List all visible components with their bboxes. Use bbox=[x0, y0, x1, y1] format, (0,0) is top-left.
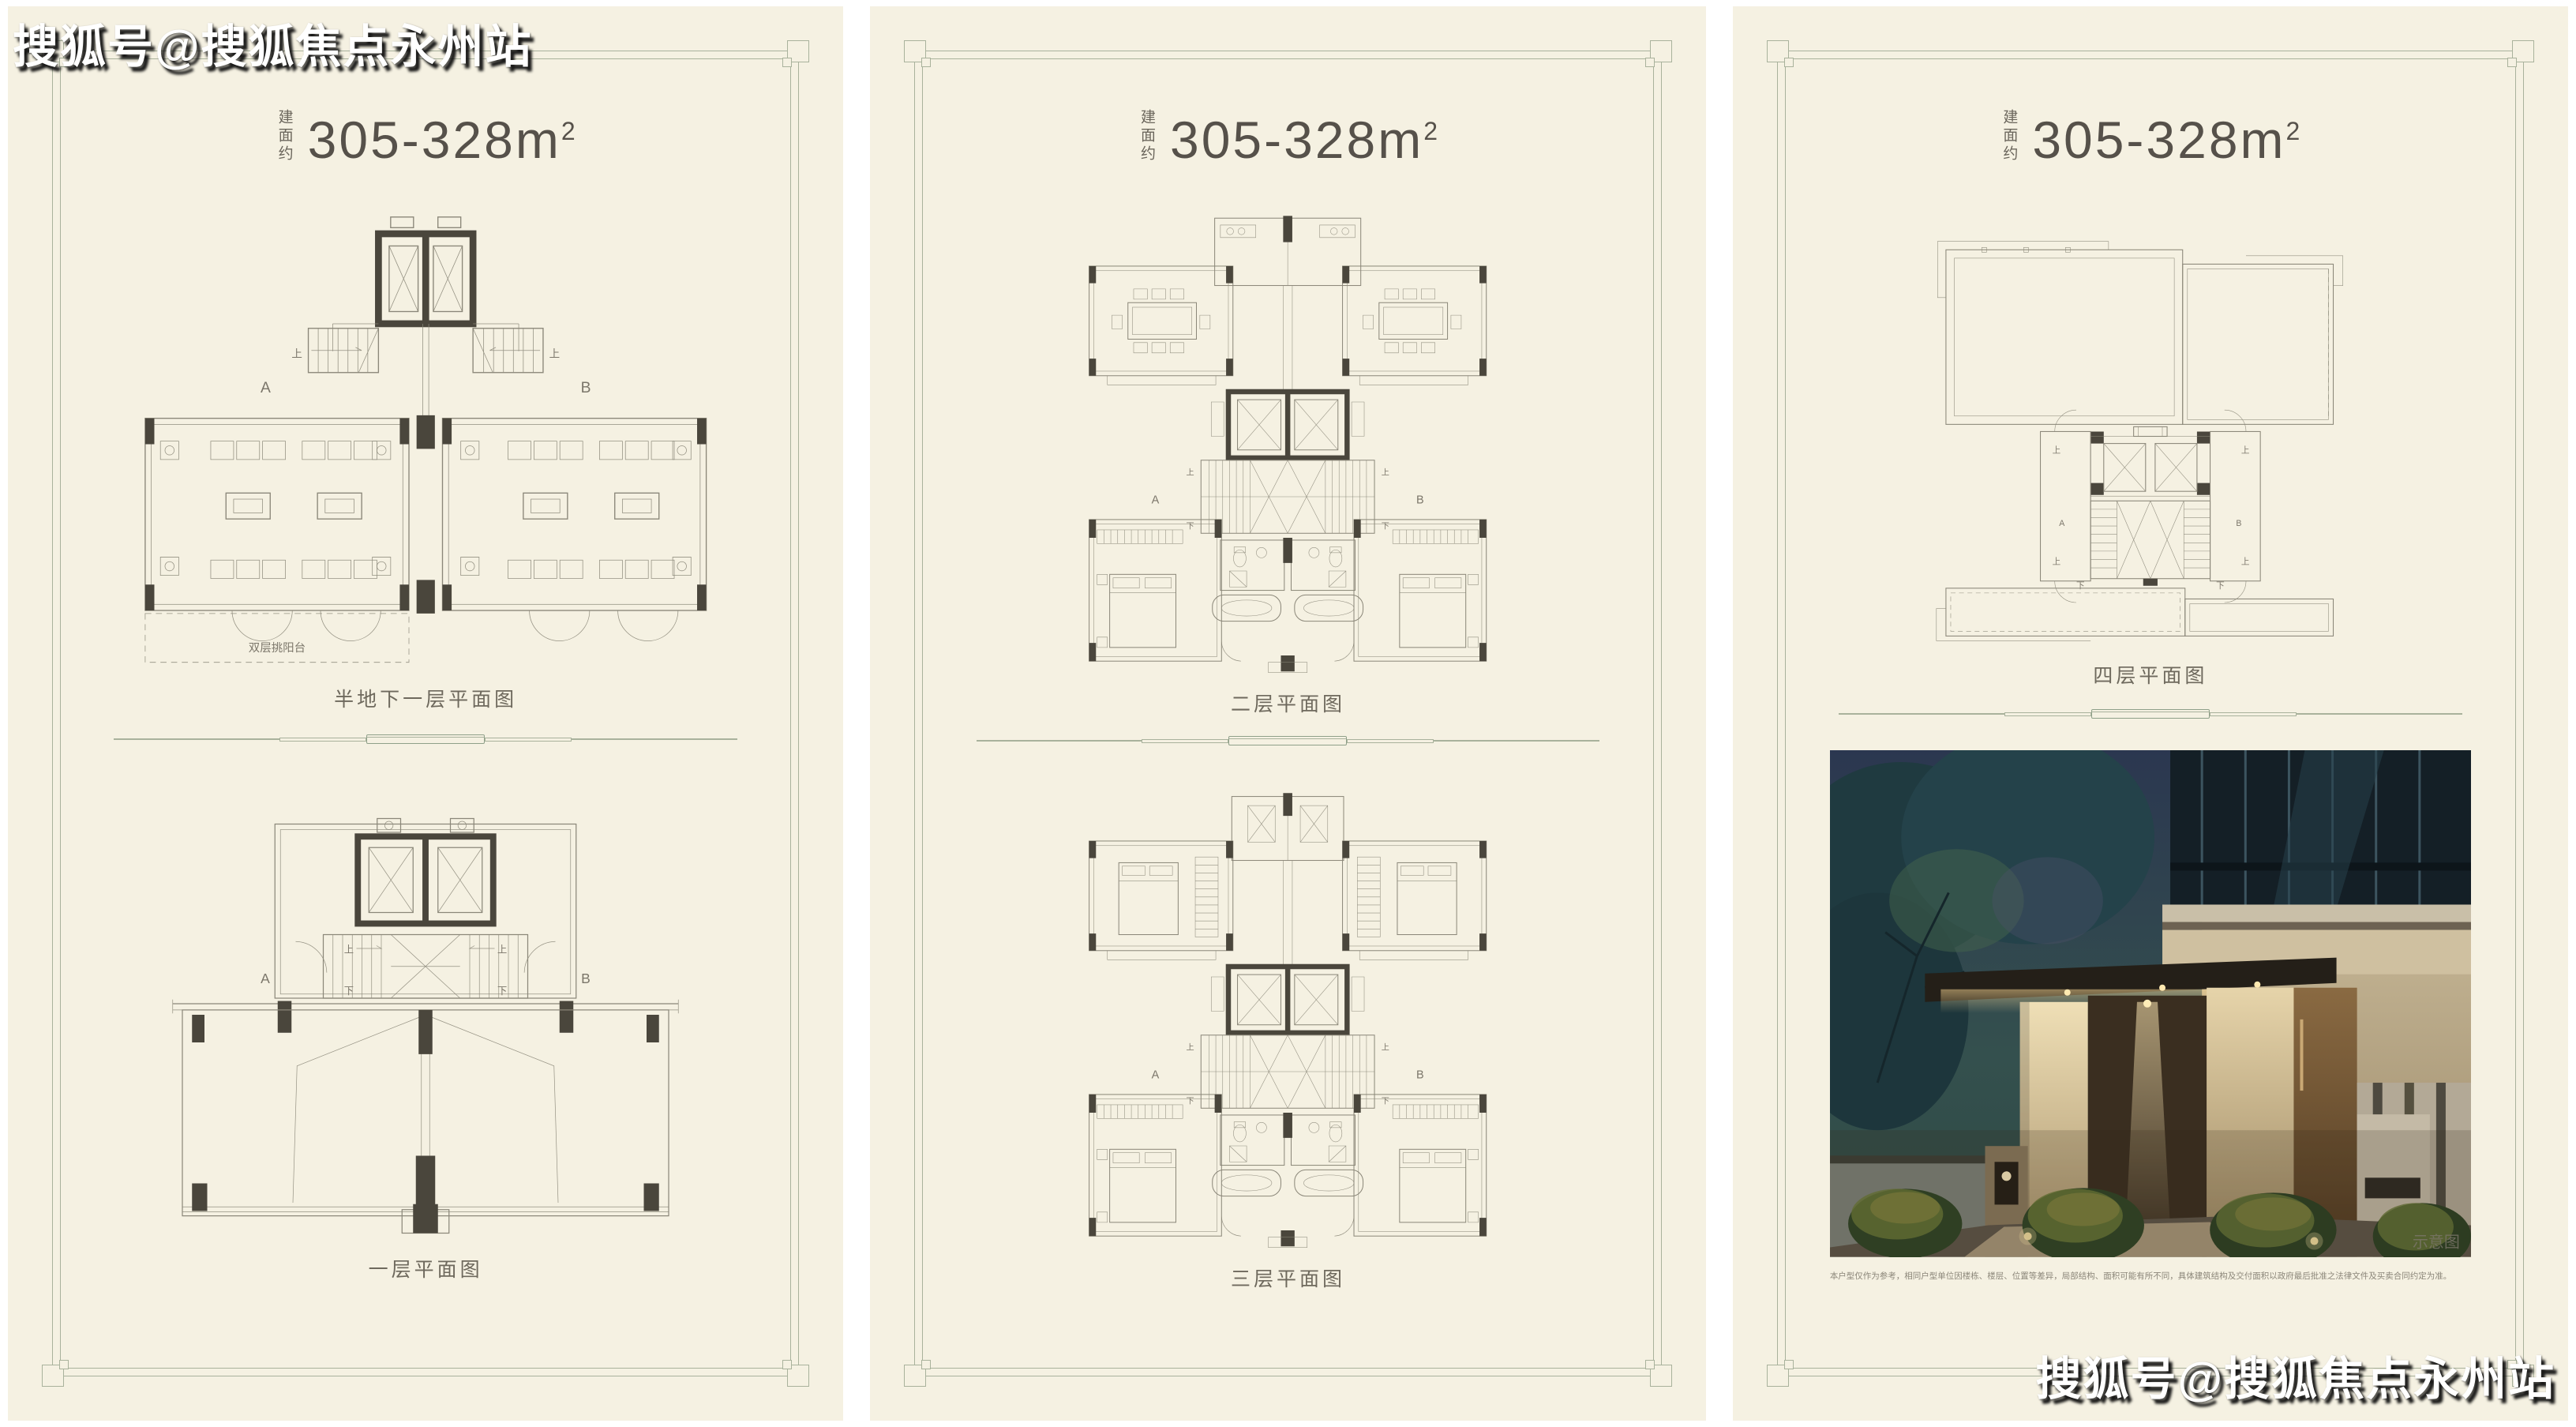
frame-corner-ornament bbox=[1650, 1365, 1672, 1387]
svg-text:下: 下 bbox=[2076, 581, 2085, 591]
frame-corner-ornament bbox=[787, 40, 809, 62]
svg-text:A: A bbox=[261, 380, 271, 396]
plan-caption: 一层平面图 bbox=[369, 1254, 483, 1282]
svg-text:上: 上 bbox=[2241, 446, 2250, 456]
svg-text:上: 上 bbox=[2053, 558, 2061, 567]
svg-text:上: 上 bbox=[344, 944, 354, 955]
svg-text:下: 下 bbox=[2216, 581, 2225, 591]
svg-text:B: B bbox=[1416, 1069, 1424, 1082]
disclaimer-text: 本户型仅作为参考，相同户型单位因楼栋、楼层、位置等差异，局部结构、面积可能有所不… bbox=[1830, 1270, 2471, 1282]
frame-corner-ornament bbox=[787, 1365, 809, 1387]
entrance-photo: 示意图 bbox=[1830, 750, 2471, 1257]
floor-plan-third-floor-drawing: 上 上 下 下 A B bbox=[1059, 777, 1516, 1251]
svg-text:下: 下 bbox=[1382, 522, 1389, 531]
svg-text:B: B bbox=[1416, 494, 1424, 507]
svg-text:A: A bbox=[1152, 494, 1160, 507]
frame-corner-ornament bbox=[904, 40, 926, 62]
floor-plan-second-floor: 上 上 下 下 A B bbox=[925, 202, 1650, 676]
panel-fourth-floor-and-photo: 建面约 305-328m2 bbox=[1733, 6, 2568, 1421]
frame-corner-ornament bbox=[1767, 1365, 1789, 1387]
svg-text:B: B bbox=[581, 380, 591, 396]
plan-caption: 三层平面图 bbox=[1231, 1264, 1345, 1292]
section-divider bbox=[1839, 709, 2462, 719]
area-value: 305-328m2 bbox=[308, 114, 578, 166]
plan-caption: 四层平面图 bbox=[2093, 660, 2207, 689]
area-title: 建面约 305-328m2 bbox=[1136, 109, 1440, 171]
frame-corner-ornament bbox=[42, 1365, 64, 1387]
floor-plan-second-floor-drawing: 上 上 下 下 A B bbox=[1059, 202, 1516, 676]
area-prefix: 建面约 bbox=[274, 109, 295, 171]
area-title: 建面约 305-328m2 bbox=[274, 109, 578, 171]
svg-text:上: 上 bbox=[1382, 1043, 1389, 1053]
panel-basement-and-first-floor: 建面约 305-328m2 上 上 A B bbox=[8, 6, 843, 1421]
svg-text:上: 上 bbox=[1382, 468, 1389, 478]
svg-text:上: 上 bbox=[1187, 468, 1194, 478]
section-divider bbox=[114, 734, 737, 744]
area-prefix: 建面约 bbox=[1998, 109, 2019, 171]
floor-plan-third-floor: 上 上 下 下 A B bbox=[925, 777, 1650, 1251]
svg-text:上: 上 bbox=[2053, 446, 2061, 456]
area-value: 305-328m2 bbox=[2032, 114, 2302, 166]
svg-text:上: 上 bbox=[1187, 1043, 1194, 1053]
svg-text:A: A bbox=[261, 971, 270, 986]
area-title: 建面约 305-328m2 bbox=[1998, 109, 2302, 171]
floor-plan-fourth-floor-drawing: 上 上 上 上 下 下 A B bbox=[1911, 226, 2390, 644]
section-divider bbox=[977, 736, 1600, 745]
svg-text:下: 下 bbox=[1187, 1097, 1194, 1106]
panel-content: 建面约 305-328m2 bbox=[925, 62, 1650, 1365]
svg-text:双层挑阳台: 双层挑阳台 bbox=[249, 641, 306, 655]
plan-caption: 二层平面图 bbox=[1231, 689, 1345, 717]
area-prefix: 建面约 bbox=[1136, 109, 1157, 171]
frame-corner-ornament bbox=[904, 1365, 926, 1387]
floor-plan-semi-basement-drawing: 上 上 A B bbox=[121, 190, 731, 678]
svg-text:B: B bbox=[581, 971, 591, 986]
brochure-page: 建面约 305-328m2 上 上 A B bbox=[8, 6, 2568, 1421]
plan-caption: 半地下一层平面图 bbox=[334, 684, 517, 712]
entrance-photo-art: 示意图 bbox=[1830, 750, 2471, 1257]
svg-text:上: 上 bbox=[291, 347, 302, 359]
svg-text:上: 上 bbox=[497, 944, 507, 955]
watermark-bottom-right: 搜狐号@搜狐焦点永州站 bbox=[2035, 1342, 2555, 1408]
panel-content: 建面约 305-328m2 上 上 A B bbox=[63, 62, 788, 1365]
svg-text:下: 下 bbox=[497, 986, 507, 997]
panel-second-and-third-floor: 建面约 305-328m2 bbox=[870, 6, 1705, 1421]
svg-text:下: 下 bbox=[1187, 522, 1194, 531]
watermark-top-left: 搜狐号@搜狐焦点永州站 bbox=[13, 9, 533, 76]
frame-corner-ornament bbox=[2512, 40, 2534, 62]
frame-corner-ornament bbox=[1767, 40, 1789, 62]
floor-plan-fourth-floor: 上 上 上 上 下 下 A B bbox=[1788, 226, 2513, 644]
panel-content: 建面约 305-328m2 bbox=[1788, 62, 2513, 1365]
svg-text:下: 下 bbox=[344, 986, 354, 997]
svg-text:B: B bbox=[2236, 519, 2241, 528]
area-value: 305-328m2 bbox=[1170, 114, 1440, 166]
svg-text:A: A bbox=[2059, 519, 2065, 528]
photo-watermark-tag: 示意图 bbox=[2413, 1234, 2460, 1252]
floor-plan-semi-basement: 上 上 A B bbox=[63, 190, 788, 678]
frame-corner-ornament bbox=[1650, 40, 1672, 62]
floor-plan-first-floor-drawing: 上 上 下 下 A B bbox=[149, 799, 702, 1241]
svg-text:上: 上 bbox=[2241, 558, 2250, 567]
floor-plan-first-floor: 上 上 下 下 A B bbox=[63, 799, 788, 1241]
svg-text:下: 下 bbox=[1382, 1097, 1389, 1106]
svg-text:上: 上 bbox=[549, 347, 561, 359]
svg-text:A: A bbox=[1152, 1069, 1160, 1082]
